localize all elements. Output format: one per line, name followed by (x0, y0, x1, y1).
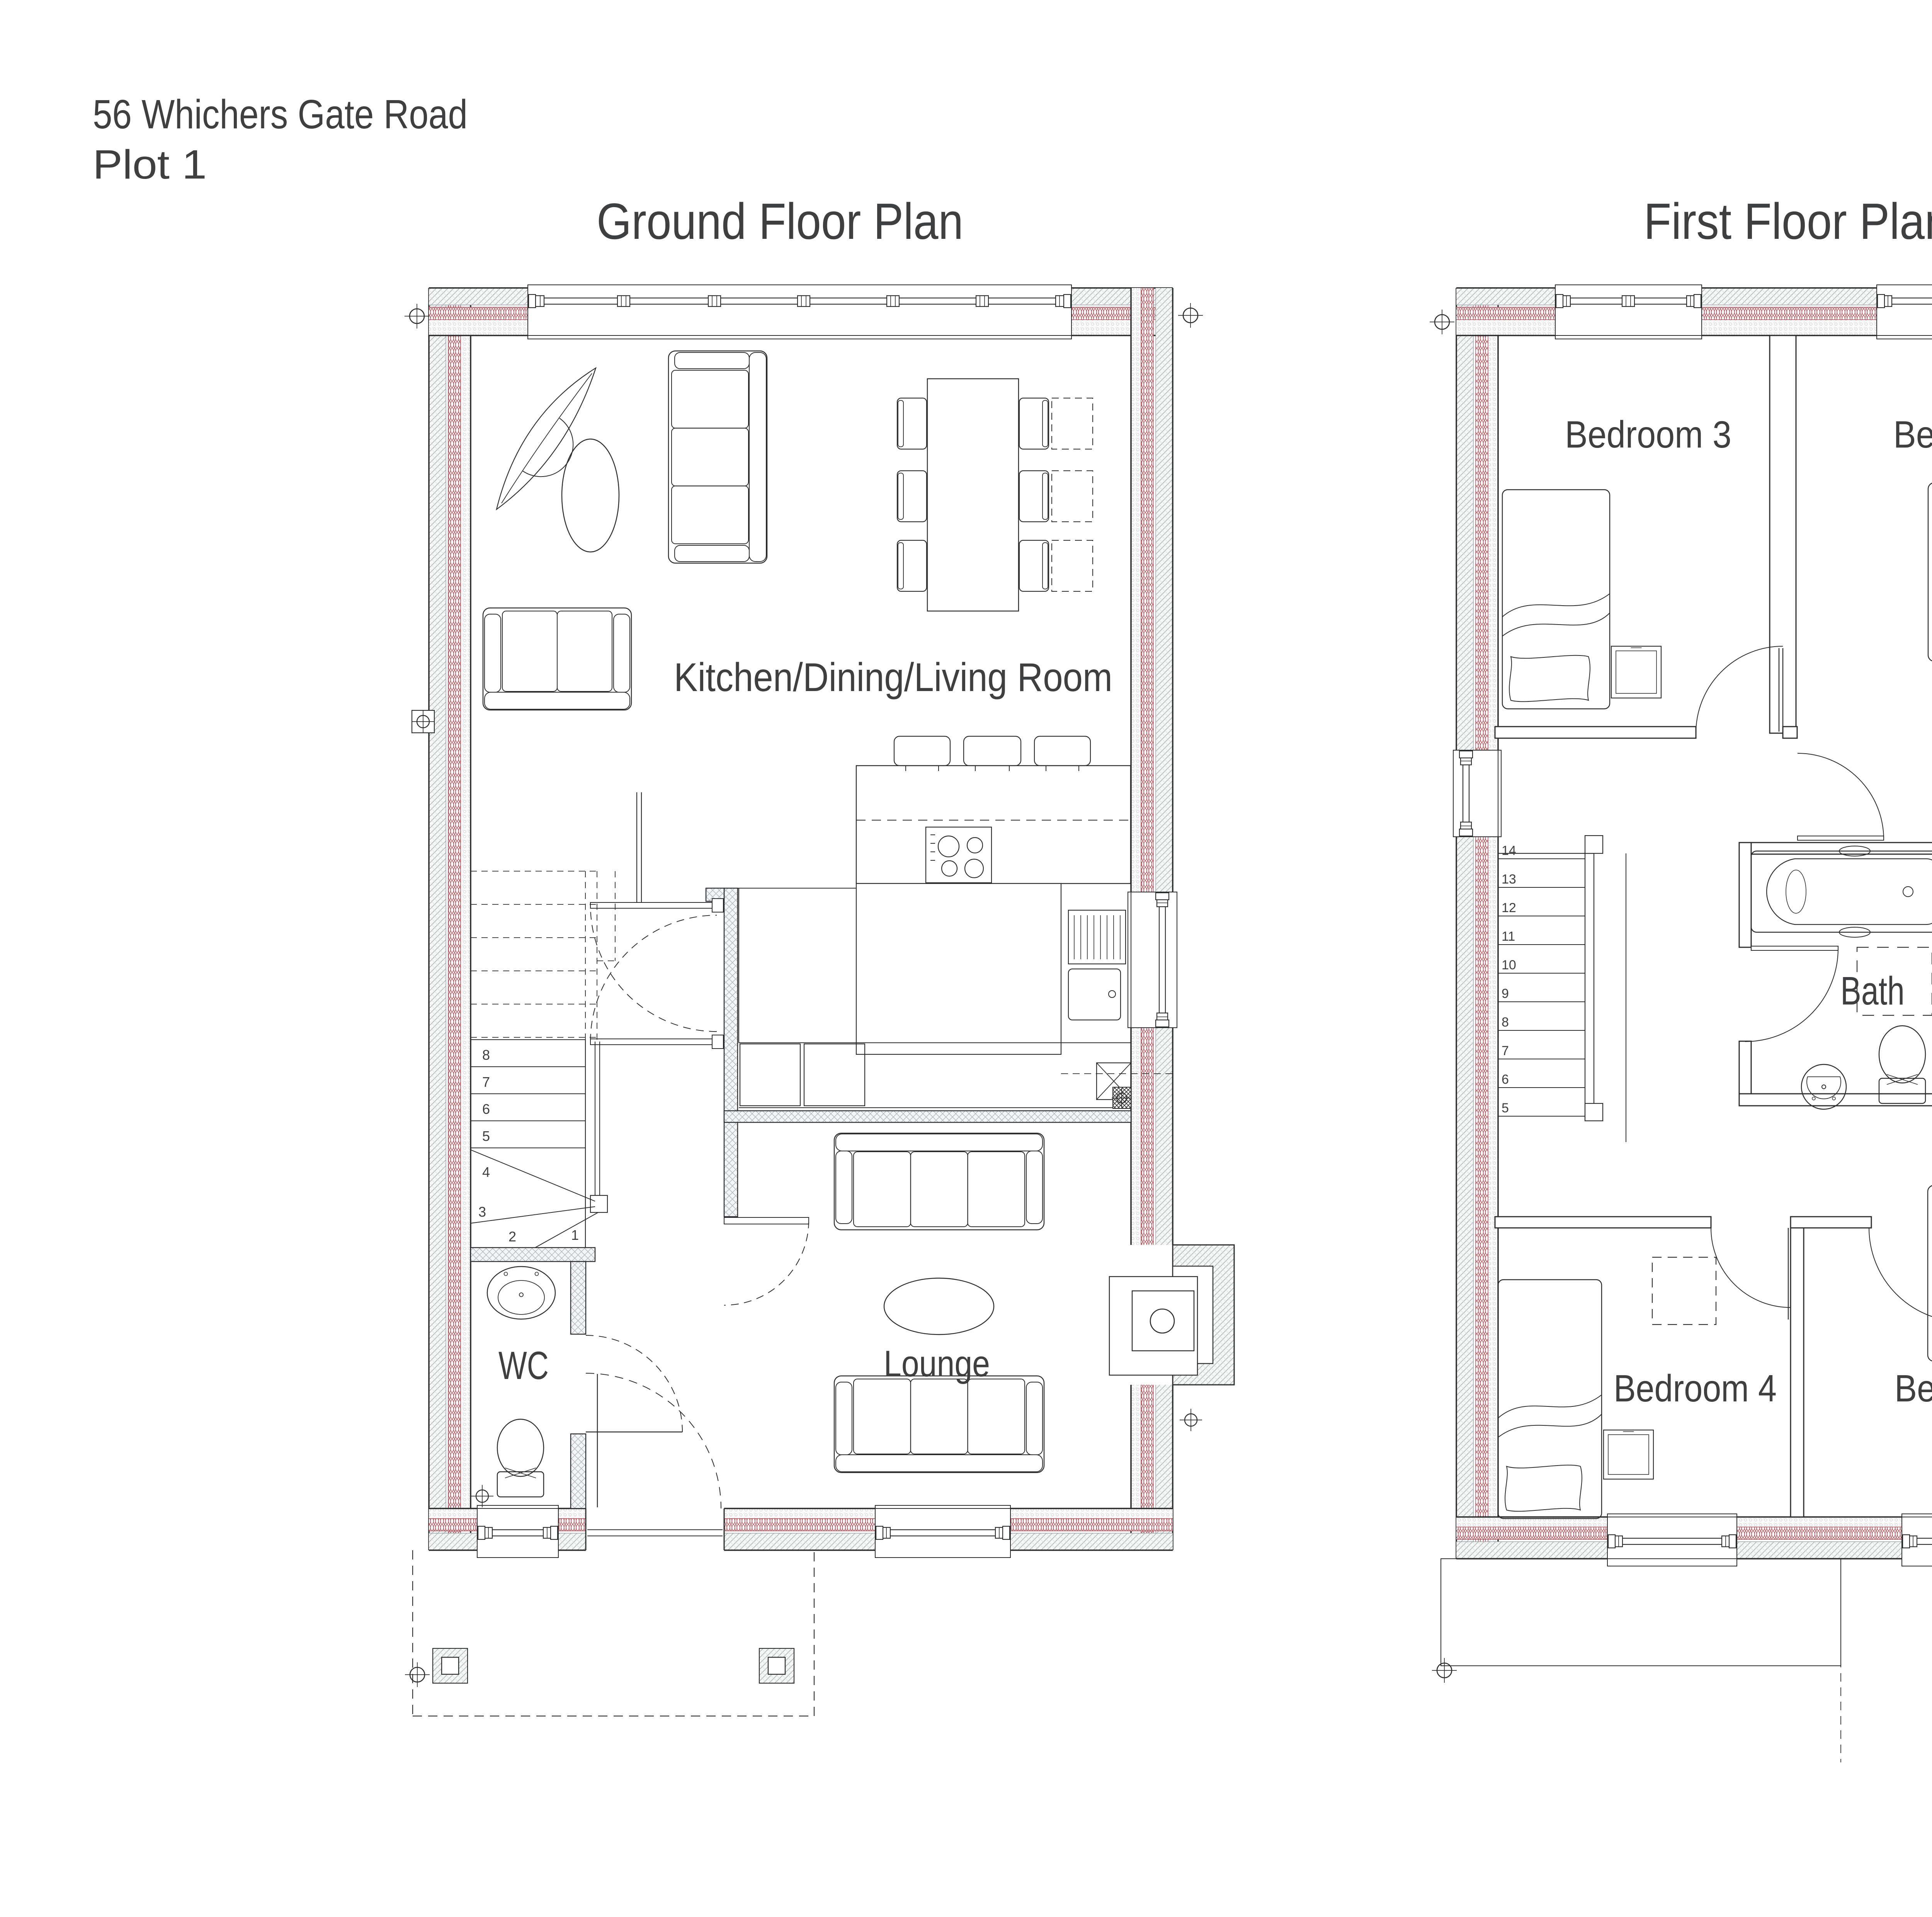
svg-text:11: 11 (1502, 929, 1515, 944)
svg-text:1: 1 (571, 1227, 579, 1243)
svg-text:WC: WC (498, 1343, 549, 1388)
svg-text:14: 14 (1502, 843, 1516, 858)
svg-text:Bedroom 2: Bedroom 2 (1895, 1367, 1932, 1410)
svg-text:Bedroom 3: Bedroom 3 (1565, 413, 1731, 456)
svg-text:9: 9 (1502, 986, 1509, 1001)
svg-text:Plot 1: Plot 1 (93, 142, 207, 187)
svg-text:Bedroom 4: Bedroom 4 (1614, 1367, 1777, 1410)
svg-text:12: 12 (1502, 901, 1516, 915)
svg-text:7: 7 (482, 1074, 490, 1090)
svg-text:13: 13 (1502, 872, 1516, 887)
svg-text:5: 5 (482, 1128, 490, 1144)
svg-text:8: 8 (1502, 1015, 1509, 1030)
svg-text:Ground Floor Plan: Ground Floor Plan (597, 193, 963, 250)
svg-text:7: 7 (1502, 1044, 1509, 1058)
svg-text:First Floor Plan: First Floor Plan (1644, 193, 1932, 250)
svg-text:10: 10 (1502, 958, 1516, 972)
svg-text:Kitchen/Dining/Living Room: Kitchen/Dining/Living Room (674, 655, 1112, 700)
svg-text:Lounge: Lounge (884, 1343, 990, 1384)
svg-text:6: 6 (1502, 1072, 1509, 1087)
svg-text:Bedroom 1: Bedroom 1 (1893, 413, 1932, 456)
svg-text:4: 4 (482, 1164, 490, 1180)
svg-text:6: 6 (482, 1101, 490, 1117)
svg-text:2: 2 (509, 1229, 516, 1245)
svg-text:3: 3 (478, 1204, 486, 1220)
svg-text:56 Whichers Gate Road: 56 Whichers Gate Road (93, 92, 468, 137)
svg-text:8: 8 (482, 1047, 490, 1063)
svg-text:5: 5 (1502, 1101, 1509, 1115)
svg-text:Bath: Bath (1840, 969, 1905, 1013)
